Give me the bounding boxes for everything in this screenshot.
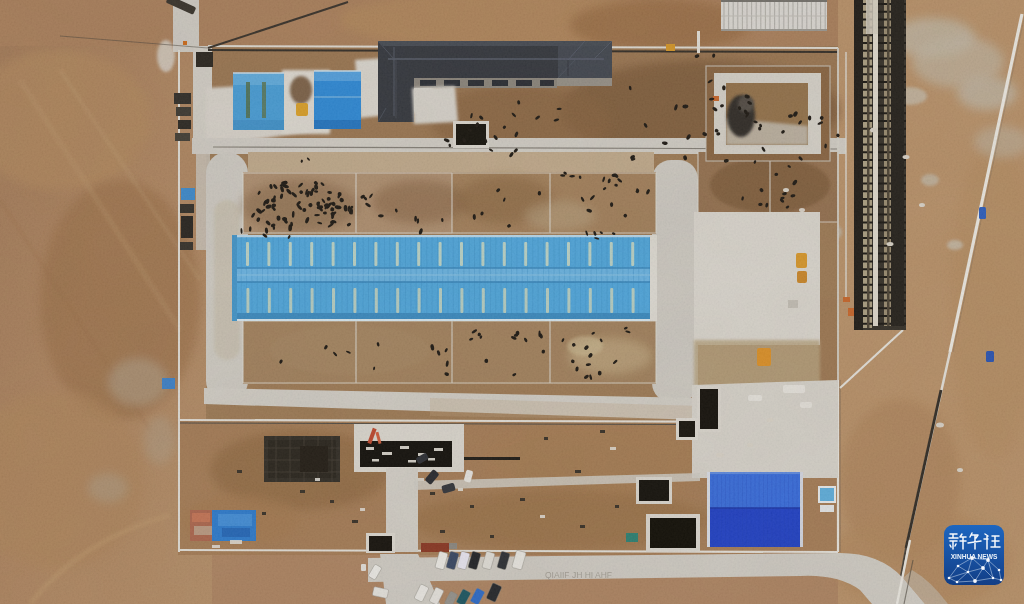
svg-text:XINHUA NEWS: XINHUA NEWS — [951, 553, 998, 560]
